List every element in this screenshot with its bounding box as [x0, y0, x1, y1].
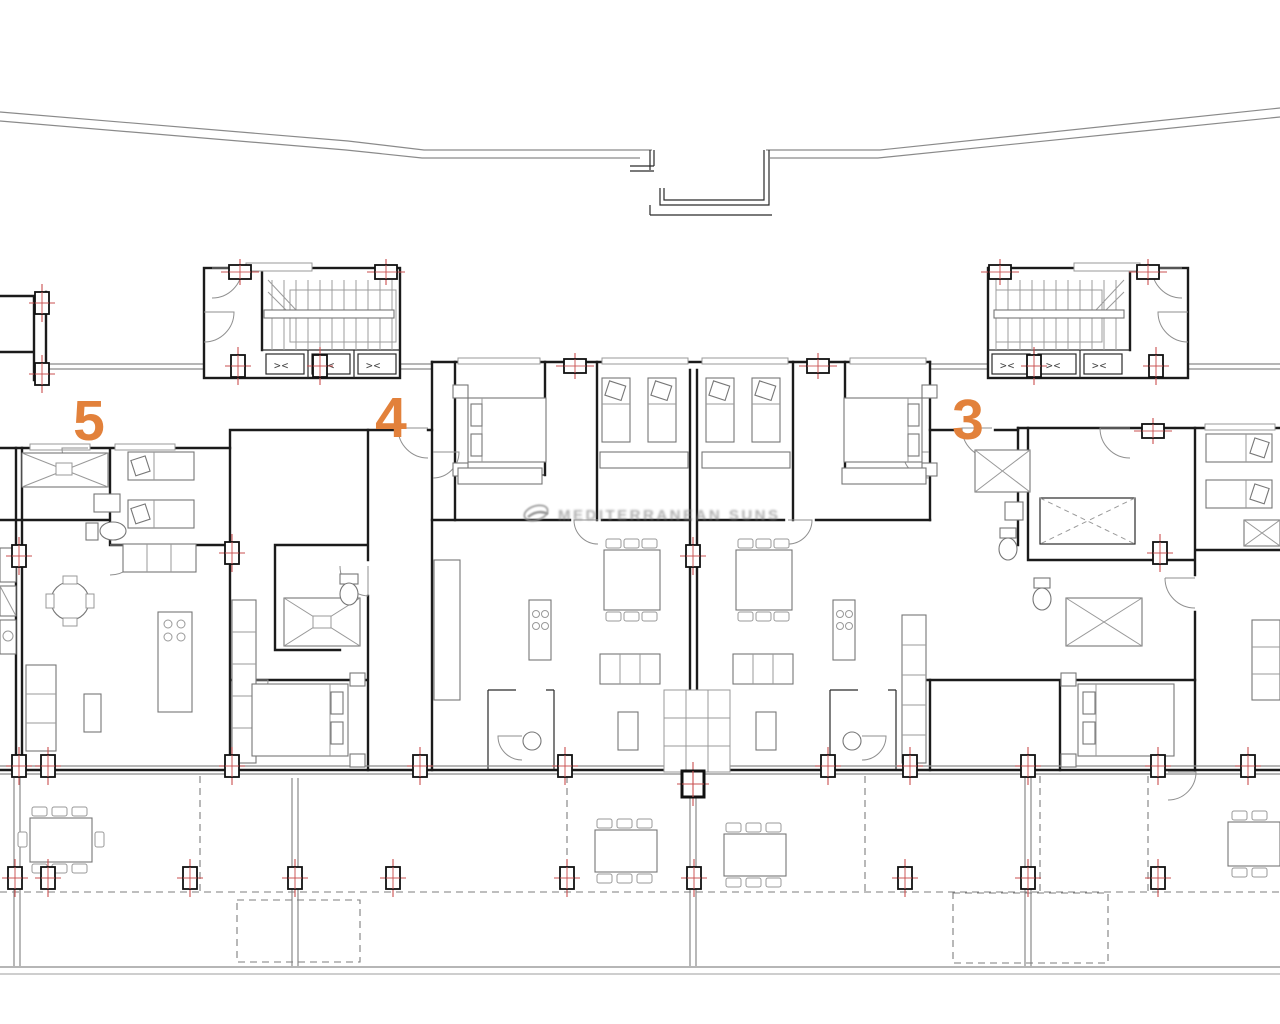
wardrobe: [458, 468, 542, 484]
column-marker: [6, 747, 32, 785]
shower: [1066, 598, 1142, 646]
bed: [1206, 480, 1272, 508]
column-marker: [681, 859, 707, 897]
wardrobe: [702, 452, 790, 468]
column-marker: [407, 747, 433, 785]
bath-sink: [843, 732, 861, 750]
floor-plan-drawing: >< >< >< >< >< ><: [0, 0, 1280, 1024]
sofa: [26, 665, 101, 751]
toilet: [1033, 578, 1051, 610]
terrace-table: [724, 823, 786, 887]
coffee-table: [756, 712, 776, 750]
dining-table: [736, 539, 792, 621]
column-marker: [1021, 347, 1047, 385]
column-marker: [307, 347, 333, 385]
column-marker: [2, 859, 28, 897]
wardrobe: [600, 452, 688, 468]
column-marker: [1235, 747, 1261, 785]
column-marker: [1147, 534, 1173, 572]
shower: [1244, 520, 1280, 546]
column-marker: [1015, 747, 1041, 785]
double-bed: [844, 385, 937, 476]
roof-outline: [0, 108, 1280, 215]
bath-sink: [523, 732, 541, 750]
floor-plan-page: >< >< >< >< >< ><: [0, 0, 1280, 1024]
sink: [1005, 502, 1023, 520]
toilet: [999, 528, 1017, 560]
kitchen-island: [833, 600, 855, 660]
kitchen-island: [158, 612, 192, 712]
wardrobe: [842, 468, 926, 484]
kitchen-counter: [434, 560, 460, 700]
column-marker: [219, 534, 245, 572]
watermark-text: MEDITERRANEAN SUNS: [558, 507, 781, 524]
lift-symbol: ><: [1092, 359, 1107, 372]
lift-symbol: ><: [274, 359, 289, 372]
column-marker: [1015, 859, 1041, 897]
tall-cabinets: [902, 615, 926, 763]
bed: [1206, 434, 1272, 462]
bed: [706, 378, 734, 442]
bed: [648, 378, 676, 442]
column-marker: [1143, 347, 1169, 385]
column-marker: [225, 347, 251, 385]
roof-center-notch: [630, 150, 772, 215]
column-marker: [1145, 859, 1171, 897]
round-table: [46, 576, 94, 626]
unit-label-3: 3: [952, 388, 984, 452]
kitchen-island: [529, 600, 551, 660]
lift-bank: >< >< ><: [266, 350, 396, 378]
lift-symbol: ><: [366, 359, 381, 372]
toilet: [86, 522, 126, 540]
column-marker: [799, 353, 837, 379]
closet-dashed: [1040, 498, 1135, 544]
coffee-table: [84, 694, 101, 732]
bed: [128, 500, 194, 528]
lift-bank: >< >< ><: [992, 350, 1122, 378]
column-marker: [554, 859, 580, 897]
lift-symbol: ><: [1000, 359, 1015, 372]
column-marker: [35, 747, 61, 785]
column-marker: [380, 859, 406, 897]
double-bed: [1061, 673, 1174, 767]
terrace-table: [18, 807, 104, 873]
column-marker: [556, 353, 594, 379]
toilet: [340, 574, 358, 605]
column-marker: [177, 859, 203, 897]
bed: [602, 378, 630, 442]
column-marker: [981, 259, 1019, 285]
column-marker: [892, 859, 918, 897]
double-bed: [252, 673, 365, 767]
glazing-grid: [664, 690, 730, 772]
coffee-table: [618, 712, 638, 750]
column-marker: [282, 859, 308, 897]
furniture: [0, 378, 1280, 772]
lift-symbol: ><: [1046, 359, 1061, 372]
column-marker: [552, 747, 578, 785]
column-marker: [1134, 418, 1172, 444]
double-bed: [453, 385, 546, 476]
sofa: [1252, 620, 1280, 700]
unit-label-5: 5: [73, 389, 105, 453]
column-marker: [815, 747, 841, 785]
wardrobe: [123, 544, 196, 572]
watermark: MEDITERRANEAN SUNS: [522, 503, 780, 524]
column-marker: [680, 537, 706, 575]
terrace-table: [1228, 811, 1280, 877]
shower: [22, 453, 108, 487]
bed: [128, 452, 194, 480]
sofa: [733, 654, 793, 750]
sink: [94, 494, 120, 512]
bed: [752, 378, 780, 442]
unit-label-4: 4: [375, 386, 407, 450]
sofa: [600, 654, 660, 750]
shower: [975, 450, 1030, 492]
dining-table: [604, 539, 660, 621]
terrace-table: [595, 819, 657, 883]
